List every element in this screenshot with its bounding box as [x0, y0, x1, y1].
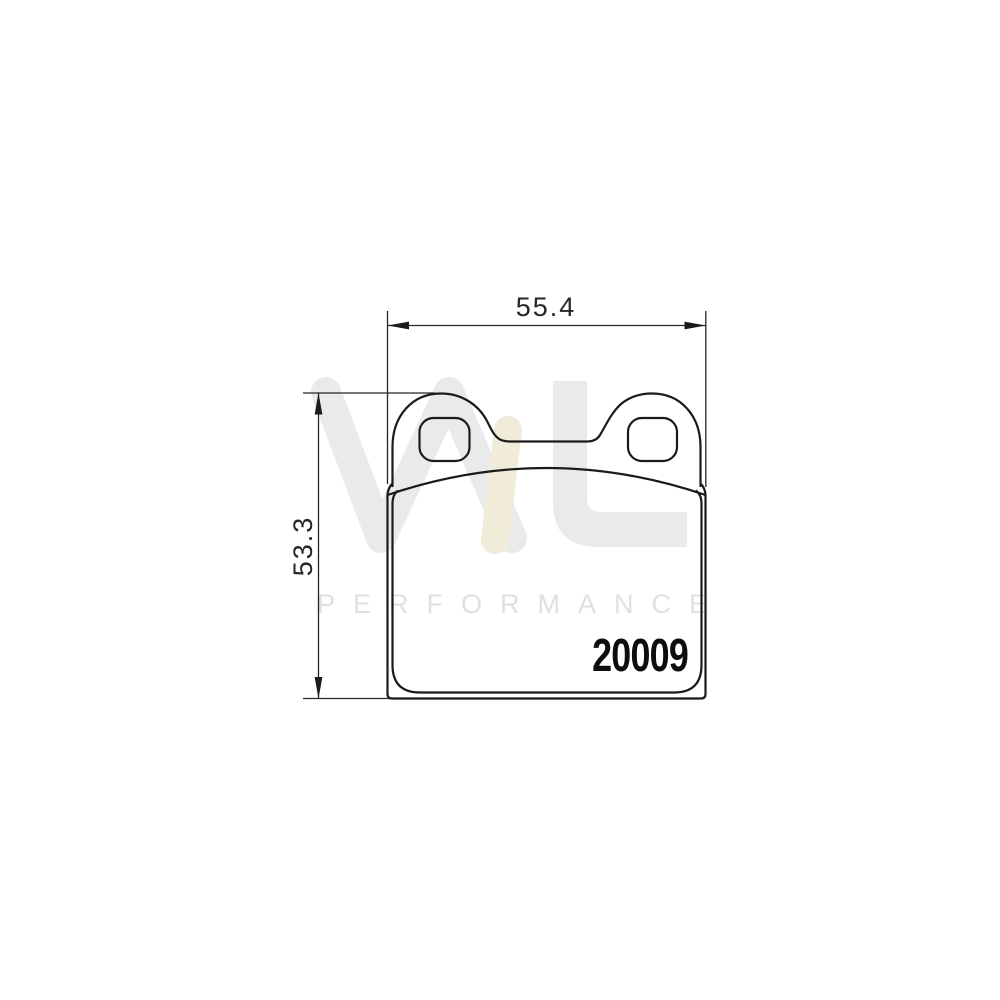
brake-pad-technical-drawing: PERFORMANCE 55.4 [0, 0, 1000, 1000]
width-arrow-right [685, 322, 706, 330]
width-dimension-label: 55.4 [516, 292, 577, 322]
right-ear-hole [628, 418, 677, 461]
pad-top-arc [388, 468, 706, 495]
width-arrow-left [388, 322, 410, 330]
part-number-text: 20009 [592, 630, 688, 681]
watermark-performance-text: PERFORMANCE [317, 589, 725, 619]
drawing-svg: PERFORMANCE 55.4 [0, 0, 1000, 1000]
height-dimension-label: 53.3 [288, 516, 318, 577]
watermark-accent-stroke [495, 430, 508, 540]
height-arrow-bottom [315, 677, 323, 699]
watermark-ml-performance: PERFORMANCE [317, 381, 725, 619]
